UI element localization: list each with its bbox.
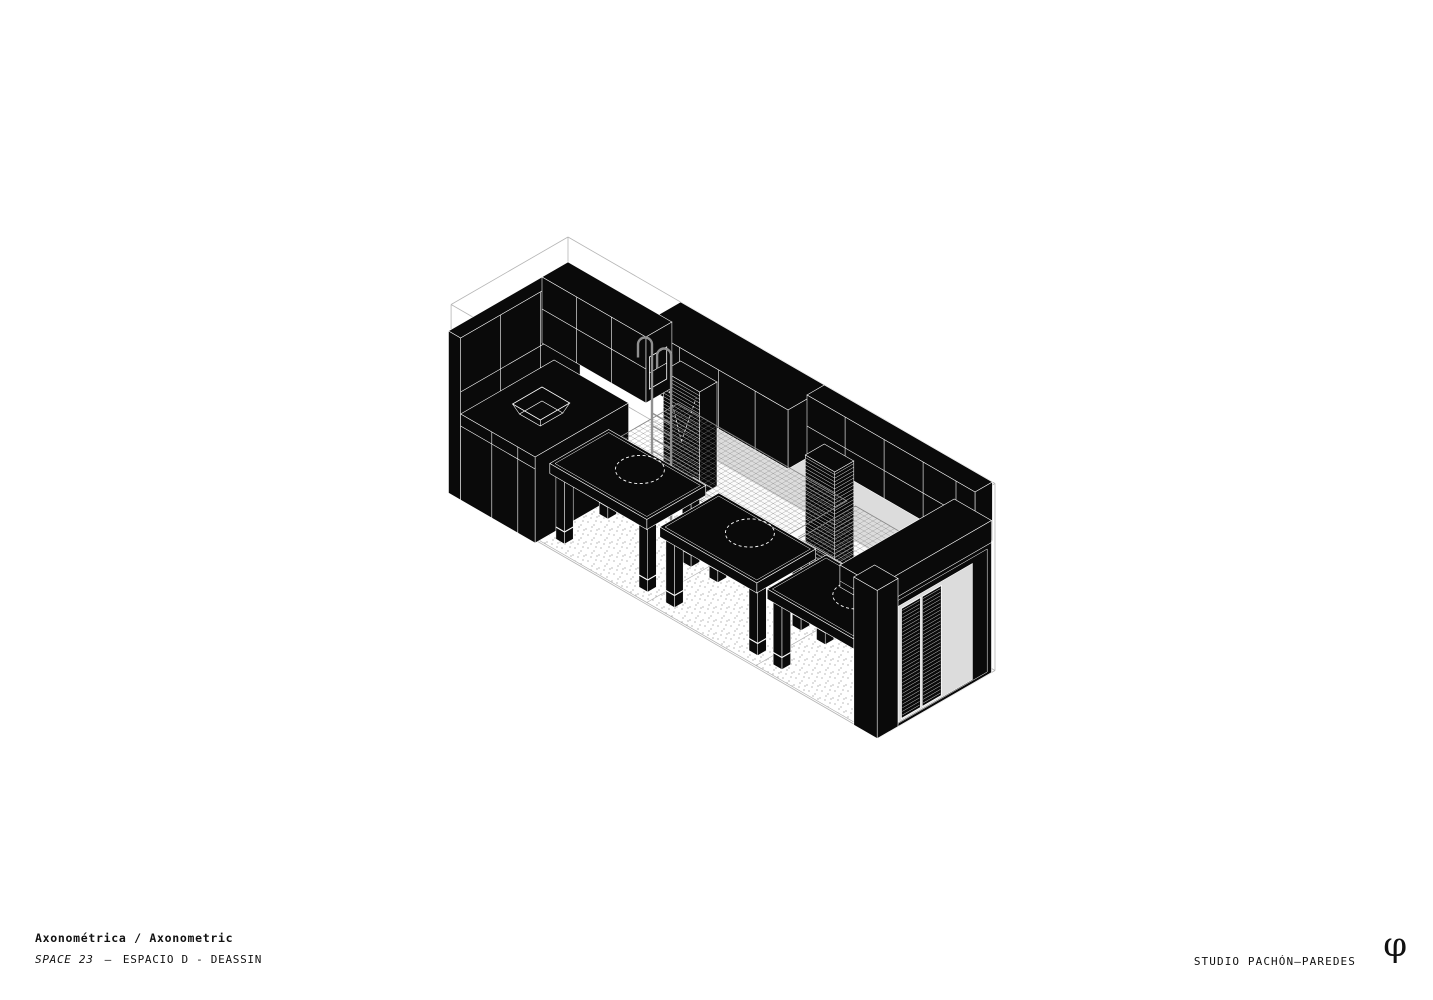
studio-logo-phi-icon: φ	[1383, 928, 1407, 962]
space-code: SPACE 23	[35, 953, 94, 966]
drawing-sheet: Axonométrica / Axonometric SPACE 23—ESPA…	[0, 0, 1433, 1000]
axonometric-drawing	[0, 0, 1433, 1000]
project-name: ESPACIO D - DEASSIN	[123, 953, 262, 966]
studio-name: STUDIO PACHÓN—PAREDES	[1194, 955, 1356, 968]
subtitle-separator: —	[105, 953, 112, 966]
drawing-subtitle: SPACE 23—ESPACIO D - DEASSIN	[35, 953, 262, 966]
drawing-title: Axonométrica / Axonometric	[35, 931, 262, 945]
title-block: Axonométrica / Axonometric SPACE 23—ESPA…	[35, 931, 262, 966]
